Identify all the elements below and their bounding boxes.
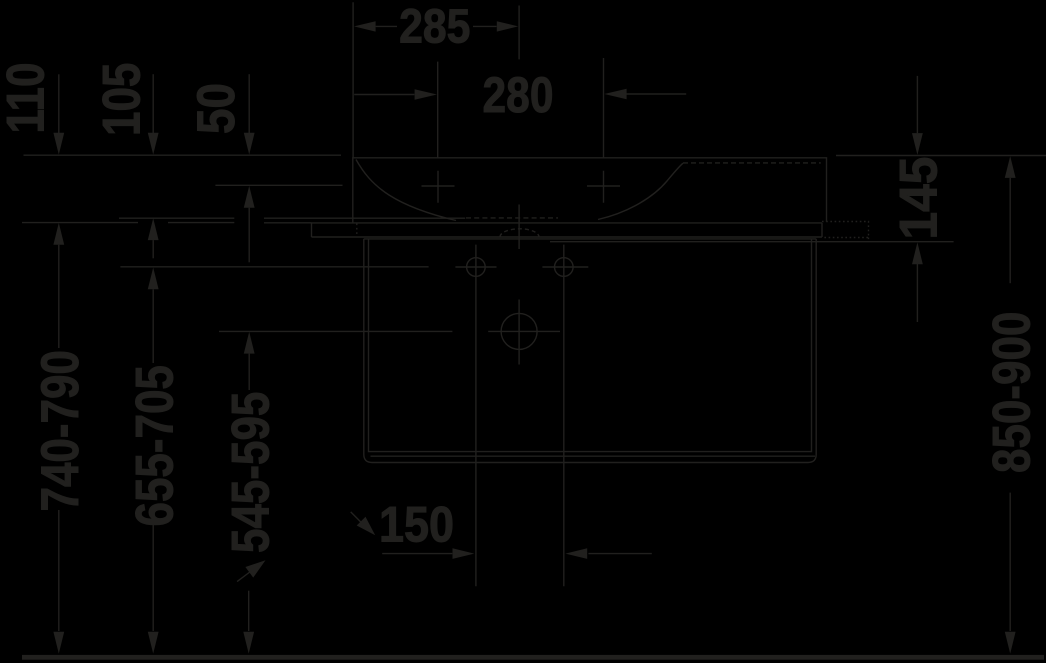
svg-text:740-790: 740-790 xyxy=(31,350,90,511)
svg-text:150: 150 xyxy=(379,497,454,553)
svg-text:280: 280 xyxy=(483,67,554,123)
svg-text:145: 145 xyxy=(888,157,948,240)
svg-text:50: 50 xyxy=(186,83,246,134)
svg-text:655-705: 655-705 xyxy=(126,365,185,526)
svg-text:110: 110 xyxy=(0,63,55,134)
svg-text:545-595: 545-595 xyxy=(222,392,281,553)
svg-text:285: 285 xyxy=(399,0,470,53)
svg-text:850-900: 850-900 xyxy=(983,312,1042,473)
svg-text:105: 105 xyxy=(93,63,152,136)
